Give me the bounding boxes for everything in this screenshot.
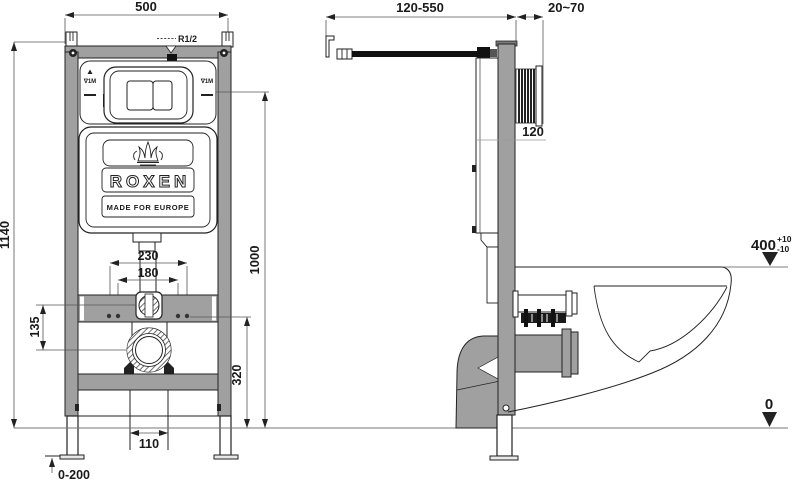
drain-outlet-front: [124, 322, 174, 374]
level-mark-0: 0: [762, 396, 777, 427]
svg-text:+10: +10: [777, 234, 792, 244]
svg-text:0: 0: [765, 396, 773, 413]
svg-text:400: 400: [751, 237, 776, 254]
svg-text:∇1M: ∇1M: [83, 78, 96, 85]
flush-button-small: [153, 81, 172, 110]
svg-text:500: 500: [135, 0, 157, 14]
svg-text:-10: -10: [777, 244, 790, 254]
svg-text:∇1M: ∇1M: [200, 78, 213, 85]
cistern-side: [472, 58, 498, 303]
cistern-front: ROXEN MADE FOR EUROPE: [79, 127, 217, 251]
flush-plate-panel: ∇1M ∇1M: [80, 61, 216, 124]
frame-top-bar: [65, 46, 231, 58]
svg-text:120-550: 120-550: [396, 0, 444, 15]
drain-connector-pipe: [515, 329, 578, 377]
svg-text:110: 110: [139, 437, 159, 451]
flush-button-large: [127, 81, 153, 110]
level-mark-400: 400 +10 -10: [722, 234, 792, 267]
flush-shaft-bellows: [516, 66, 542, 126]
dim-supply-length: 120-550: [326, 0, 516, 37]
svg-text:230: 230: [138, 249, 159, 263]
flush-elbow-fitting: [136, 292, 162, 319]
flush-connector-pipe: [513, 291, 577, 327]
svg-text:320: 320: [230, 365, 244, 386]
dim-height-1140: 1140: [0, 42, 66, 428]
frame-rail-side: [498, 44, 515, 415]
svg-text:20~70: 20~70: [548, 0, 585, 15]
frame-left-rail: [65, 52, 78, 416]
svg-text:1000: 1000: [247, 246, 262, 275]
brand-tagline-text: MADE FOR EUROPE: [107, 203, 190, 212]
frame-bottom-bar: [78, 374, 218, 390]
frame-bottom-box: [78, 390, 218, 416]
svg-text:R1/2: R1/2: [178, 34, 197, 44]
svg-text:1140: 1140: [0, 221, 12, 249]
dim-width-500: 500: [65, 0, 228, 44]
wall-bracket-tabs: [66, 32, 233, 47]
dim-drain-offset-110: 110: [130, 433, 168, 451]
frame-right-rail: [218, 52, 231, 416]
floor-triangle-icon: [762, 412, 777, 427]
side-view: 120-550 20~70: [326, 0, 792, 460]
svg-text:135: 135: [28, 317, 42, 338]
svg-text:120: 120: [522, 124, 544, 139]
water-supply-pipe: [326, 36, 497, 59]
dim-leg-adjust-0-200: 0-200: [45, 456, 90, 482]
front-view: 500 R1/2: [0, 0, 269, 482]
brand-logo-text: ROXEN: [110, 172, 190, 191]
level-triangle-icon: [762, 252, 778, 266]
svg-text:180: 180: [138, 266, 159, 280]
svg-text:0-200: 0-200: [58, 468, 90, 482]
technical-drawing-page: 500 R1/2: [0, 0, 800, 482]
installation-frame-drawing: 500 R1/2: [0, 0, 800, 482]
